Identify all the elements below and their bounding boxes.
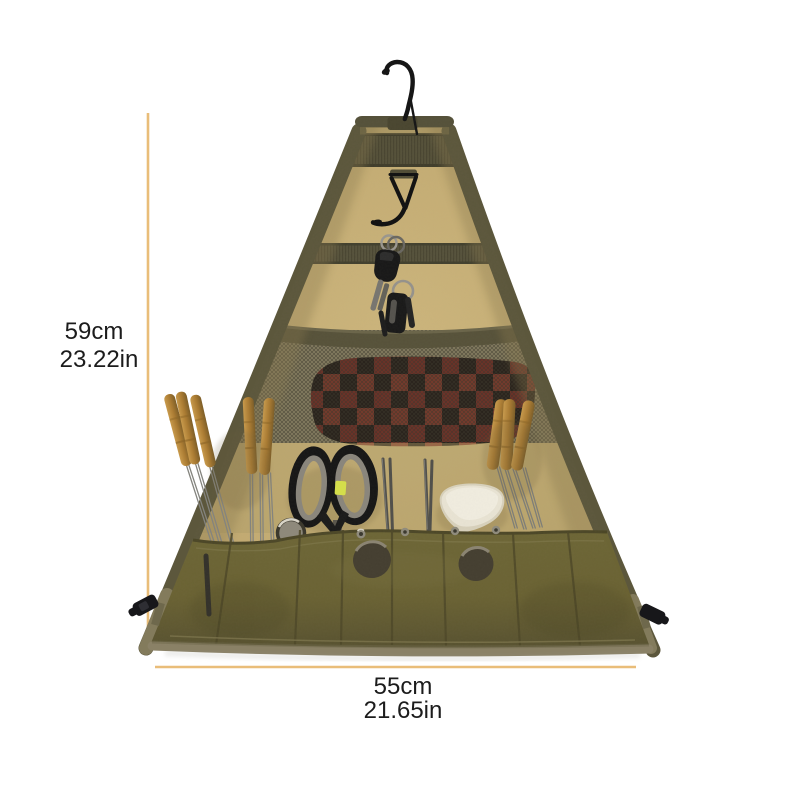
svg-text:55cm: 55cm	[374, 673, 433, 700]
svg-text:59cm: 59cm	[65, 318, 124, 345]
svg-text:23.22in: 23.22in	[60, 346, 139, 373]
svg-text:21.65in: 21.65in	[364, 697, 443, 724]
